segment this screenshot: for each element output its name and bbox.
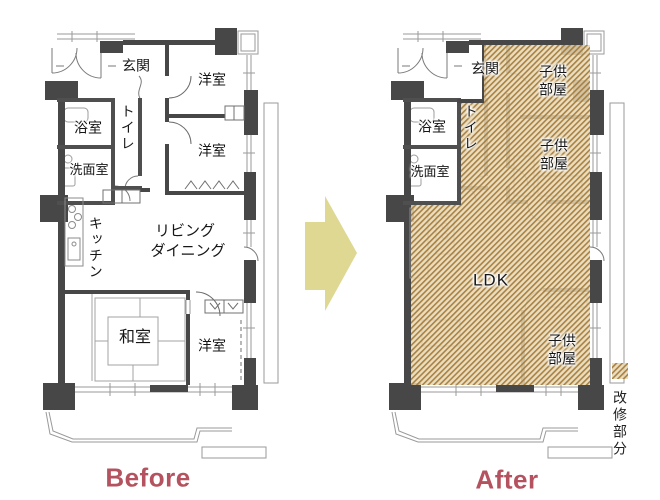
after-title: After: [475, 465, 538, 496]
after-room-label-kids2: 子供部屋: [539, 138, 568, 173]
before-room-label-bathroom: 浴室: [74, 119, 102, 137]
legend-label: 改修部分: [610, 390, 630, 458]
before-room-label-kitchen: キッチン: [86, 216, 104, 280]
before-to-after-arrow: [305, 196, 357, 311]
renovation-before-after-figure: 玄関 洋室 浴室 トイレ 洋室 洗面室 キッチン リビング ダイニング 和室 洋…: [0, 0, 660, 500]
before-room-label-toilet: トイレ: [118, 104, 136, 152]
before-room-label-living-line1: リビング: [155, 223, 215, 242]
before-room-label-genkan: 玄関: [122, 57, 150, 75]
after-room-label-kids3: 子供部屋: [547, 333, 576, 368]
after-room-label-toilet: トイレ: [461, 104, 479, 152]
after-room-label-ldk: LDK: [473, 269, 509, 290]
before-room-label-washroom: 洗面室: [69, 162, 108, 178]
before-room-label-western2: 洋室: [198, 142, 226, 160]
after-room-label-kids1: 子供部屋: [538, 64, 567, 99]
after-room-label-washroom: 洗面室: [410, 164, 449, 180]
before-title: Before: [105, 463, 190, 494]
before-interior-walls: [60, 40, 244, 385]
after-floor-plan: [386, 28, 624, 458]
legend-swatch: [612, 363, 628, 379]
before-room-label-western1: 洋室: [198, 71, 226, 89]
before-room-label-western3: 洋室: [198, 337, 226, 355]
after-room-label-genkan: 玄関: [471, 60, 499, 78]
after-room-label-bathroom: 浴室: [418, 118, 446, 136]
before-room-label-japanese-room: 和室: [119, 328, 151, 348]
before-room-label-living-line2: ダイニング: [150, 243, 225, 262]
